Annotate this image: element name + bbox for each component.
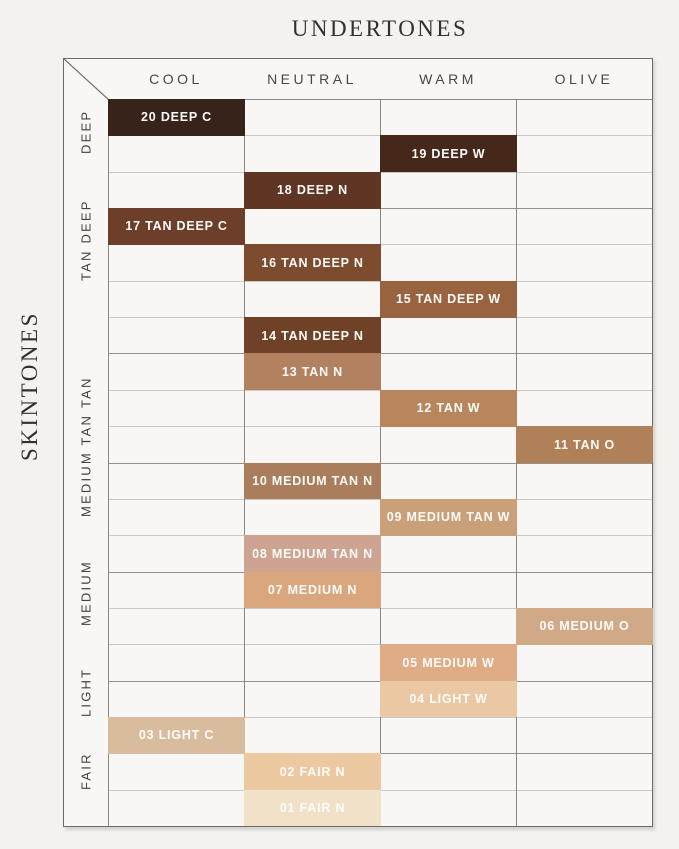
shade-swatch-label: 12 TAN W bbox=[417, 401, 481, 415]
shade-swatch-label: 14 TAN DEEP N bbox=[261, 329, 363, 343]
column-header-cool: COOL bbox=[108, 59, 244, 99]
shade-swatch-label: 17 TAN DEEP C bbox=[125, 219, 227, 233]
shade-swatch-17-tan-deep-c: 17 TAN DEEP C bbox=[108, 208, 245, 245]
shade-swatch-07-medium-n: 07 MEDIUM N bbox=[244, 572, 381, 609]
shade-swatch-label: 16 TAN DEEP N bbox=[261, 256, 363, 270]
shade-swatch-08-medium-tan-n: 08 MEDIUM TAN N bbox=[244, 535, 381, 572]
shade-swatch-label: 13 TAN N bbox=[282, 365, 343, 379]
shade-swatch-20-deep-c: 20 DEEP C bbox=[108, 99, 245, 136]
shade-swatch-label: 11 TAN O bbox=[554, 438, 615, 452]
shade-swatch-label: 20 DEEP C bbox=[141, 110, 212, 124]
shade-swatch-03-light-c: 03 LIGHT C bbox=[108, 717, 245, 754]
shade-swatch-11-tan-o: 11 TAN O bbox=[516, 426, 653, 463]
shade-swatch-13-tan-n: 13 TAN N bbox=[244, 353, 381, 390]
shade-swatch-15-tan-deep-w: 15 TAN DEEP W bbox=[380, 281, 517, 318]
shade-swatch-label: 01 FAIR N bbox=[280, 801, 346, 815]
shade-swatch-label: 15 TAN DEEP W bbox=[396, 292, 501, 306]
shade-swatch-label: 05 MEDIUM W bbox=[402, 656, 494, 670]
shade-swatch-18-deep-n: 18 DEEP N bbox=[244, 172, 381, 209]
shade-swatch-label: 18 DEEP N bbox=[277, 183, 348, 197]
shade-swatch-09-medium-tan-w: 09 MEDIUM TAN W bbox=[380, 499, 517, 536]
shade-grid-frame: COOLNEUTRALWARMOLIVEDEEPTAN DEEPTANMEDIU… bbox=[63, 58, 653, 827]
shade-swatch-label: 04 LIGHT W bbox=[409, 692, 487, 706]
shade-swatch-label: 19 DEEP W bbox=[412, 147, 486, 161]
shade-swatch-10-medium-tan-n: 10 MEDIUM TAN N bbox=[244, 463, 381, 500]
column-header-warm: WARM bbox=[380, 59, 516, 99]
shade-swatch-14-tan-deep-n: 14 TAN DEEP N bbox=[244, 317, 381, 354]
shade-chart: UNDERTONES SKINTONES COOLNEUTRALWARMOLIV… bbox=[0, 0, 679, 849]
column-header-olive: OLIVE bbox=[516, 59, 652, 99]
corner-diagonal-line bbox=[64, 59, 109, 100]
shade-swatch-19-deep-w: 19 DEEP W bbox=[380, 135, 517, 172]
shade-swatch-06-medium-o: 06 MEDIUM O bbox=[516, 608, 653, 645]
shade-swatch-label: 08 MEDIUM TAN N bbox=[252, 547, 373, 561]
shade-swatch-label: 10 MEDIUM TAN N bbox=[252, 474, 373, 488]
shade-swatch-label: 09 MEDIUM TAN W bbox=[387, 510, 511, 524]
shade-swatch-label: 07 MEDIUM N bbox=[268, 583, 357, 597]
shade-swatch-label: 03 LIGHT C bbox=[139, 728, 214, 742]
shade-swatch-01-fair-n: 01 FAIR N bbox=[244, 790, 381, 827]
shade-swatch-16-tan-deep-n: 16 TAN DEEP N bbox=[244, 244, 381, 281]
undertones-title: UNDERTONES bbox=[107, 16, 653, 42]
shade-swatch-label: 06 MEDIUM O bbox=[539, 619, 629, 633]
shade-swatch-02-fair-n: 02 FAIR N bbox=[244, 753, 381, 790]
shade-swatch-04-light-w: 04 LIGHT W bbox=[380, 681, 517, 718]
shade-swatch-05-medium-w: 05 MEDIUM W bbox=[380, 644, 517, 681]
shade-swatch-12-tan-w: 12 TAN W bbox=[380, 390, 517, 427]
column-header-neutral: NEUTRAL bbox=[244, 59, 380, 99]
shade-swatch-label: 02 FAIR N bbox=[280, 765, 346, 779]
